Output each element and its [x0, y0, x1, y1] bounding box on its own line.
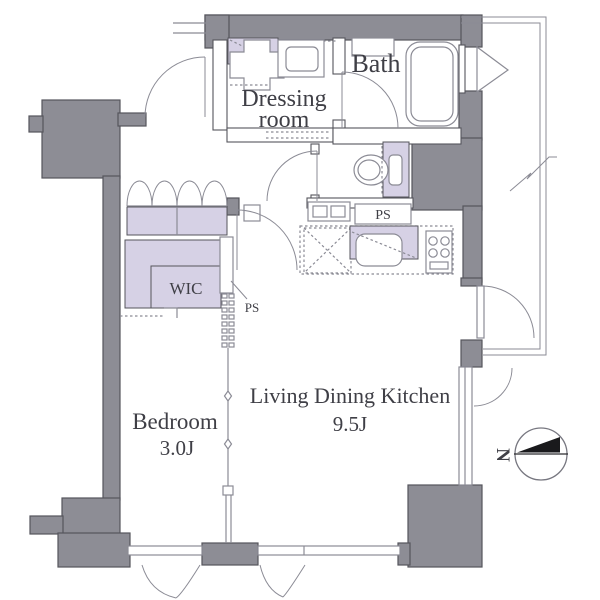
- wall-segment: [213, 40, 227, 130]
- entry-door-arc: [145, 57, 205, 117]
- wall-segment: [461, 340, 482, 367]
- walk-in-closet: WIC: [120, 240, 221, 318]
- wall-segment: [30, 516, 63, 534]
- pipe-space-kitchen: PS: [355, 204, 411, 224]
- compass: N: [492, 428, 568, 480]
- partition-post: [223, 486, 233, 495]
- hall-closet: [127, 181, 227, 235]
- side-window-swing: [474, 368, 512, 406]
- wall-segment: [408, 485, 482, 567]
- bath-label: Bath: [351, 49, 400, 78]
- ps-strip: [220, 237, 233, 293]
- wall-segment: [333, 38, 345, 74]
- bottom-windows: [128, 546, 400, 598]
- window-swing: [260, 565, 283, 597]
- bedroom-label: Bedroom: [132, 409, 218, 434]
- counter-box-frame: [308, 202, 350, 221]
- bedroom-size-label: 3.0J: [160, 436, 194, 460]
- window-swing: [142, 565, 176, 598]
- door-jamb: [311, 144, 319, 154]
- wall-segment: [62, 498, 120, 534]
- pipe-space-wall: PS: [220, 237, 259, 347]
- wic-entry-step: [164, 308, 177, 318]
- ldk-label: Living Dining Kitchen: [250, 383, 450, 408]
- ps-wall-label: PS: [245, 300, 259, 315]
- wall-segment: [205, 15, 463, 40]
- wall-segment: [461, 278, 482, 286]
- toilet-tank: [389, 155, 402, 185]
- wall-segment: [461, 15, 482, 47]
- wic-label: WIC: [169, 279, 202, 298]
- bedroom-window: [128, 546, 202, 555]
- ps-kitchen-label: PS: [375, 208, 391, 223]
- wall-segment: [103, 176, 120, 500]
- closet-door-arc: [202, 181, 227, 206]
- counter-box: [308, 202, 350, 221]
- closet-door-arc: [177, 181, 202, 206]
- wall-segment: [118, 113, 146, 126]
- duct-hatch: [222, 294, 234, 347]
- wall-segment: [42, 100, 120, 178]
- ldk-size-label: 9.5J: [333, 412, 367, 436]
- dressing-room-fixtures: [228, 38, 338, 90]
- bath-door-arc: [342, 72, 398, 128]
- wall-segment: [459, 45, 465, 93]
- sliding-partition: [223, 348, 233, 543]
- floor-plan-svg: PS WIC PS: [0, 0, 600, 600]
- partition-node: [225, 439, 232, 449]
- closet-door-arc: [152, 181, 177, 206]
- dressing-room-label-line2: room: [259, 107, 310, 133]
- toilet-door-arc: [267, 151, 317, 201]
- kitchen-fixtures: [300, 226, 453, 274]
- wall-segment: [202, 543, 258, 565]
- closet-door-arc: [127, 181, 152, 206]
- wall-segment: [459, 91, 482, 140]
- balcony-break-line: [510, 157, 557, 191]
- wall-segment: [463, 206, 482, 282]
- balcony-door-leaf: [477, 286, 484, 338]
- window-swing: [176, 565, 200, 598]
- floor-plan: PS WIC PS: [0, 0, 600, 600]
- partition-node: [225, 391, 232, 401]
- bathtub: [406, 42, 458, 126]
- toilet-fixtures: [267, 142, 409, 201]
- window-swing: [283, 565, 305, 597]
- washbasin-bowl: [286, 47, 318, 71]
- compass-north-label: N: [492, 448, 513, 462]
- bath-window-swing: [477, 47, 508, 92]
- wall-segment: [29, 116, 43, 132]
- ldk-window: [258, 546, 400, 555]
- wall-segment: [58, 533, 130, 567]
- toilet-bowl: [354, 155, 388, 185]
- wall-segment: [412, 138, 482, 210]
- balcony-door-arc: [482, 286, 534, 338]
